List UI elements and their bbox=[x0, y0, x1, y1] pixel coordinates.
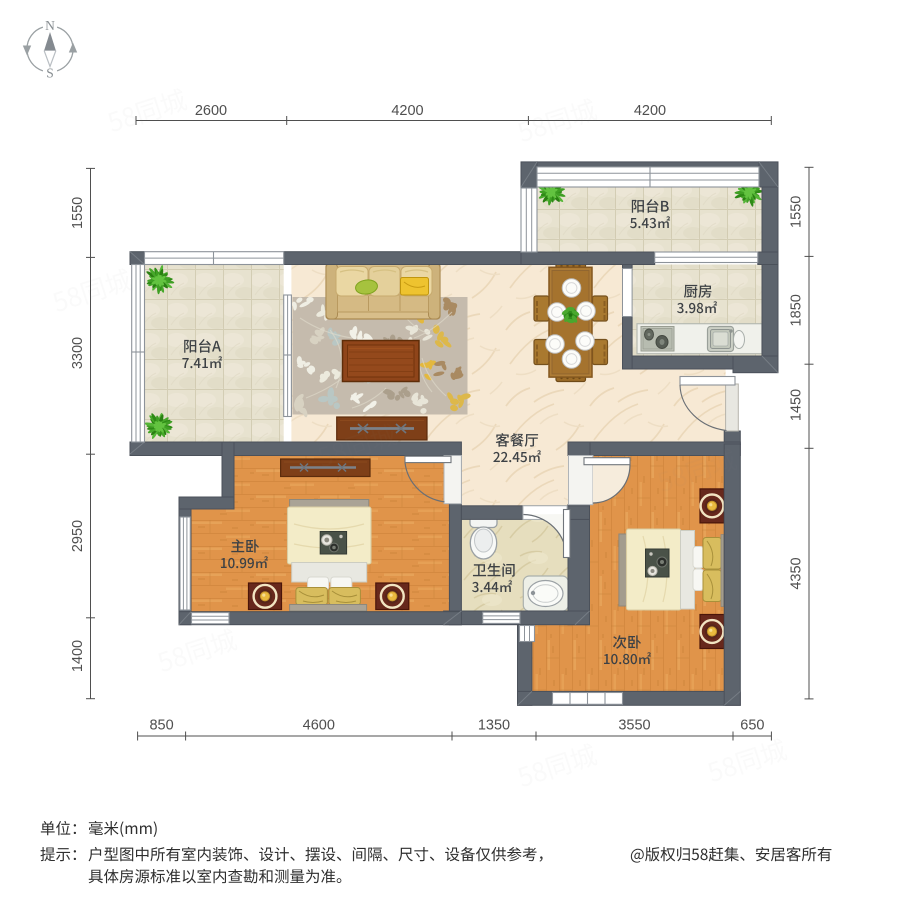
svg-text:4200: 4200 bbox=[634, 103, 666, 119]
svg-text:2950: 2950 bbox=[70, 520, 86, 552]
svg-text:1400: 1400 bbox=[70, 640, 86, 672]
svg-text:3300: 3300 bbox=[70, 337, 86, 369]
svg-text:3550: 3550 bbox=[618, 718, 650, 734]
svg-text:650: 650 bbox=[740, 718, 764, 734]
svg-text:850: 850 bbox=[149, 718, 173, 734]
svg-text:1450: 1450 bbox=[789, 389, 805, 421]
svg-text:1850: 1850 bbox=[789, 294, 805, 326]
svg-text:4600: 4600 bbox=[303, 718, 335, 734]
svg-text:4200: 4200 bbox=[391, 103, 423, 119]
svg-text:N: N bbox=[45, 18, 55, 33]
svg-text:2600: 2600 bbox=[195, 103, 227, 119]
svg-text:1550: 1550 bbox=[789, 196, 805, 228]
svg-text:4350: 4350 bbox=[789, 557, 805, 589]
svg-text:1350: 1350 bbox=[478, 718, 510, 734]
svg-text:S: S bbox=[46, 66, 54, 81]
svg-text:1550: 1550 bbox=[70, 197, 86, 229]
